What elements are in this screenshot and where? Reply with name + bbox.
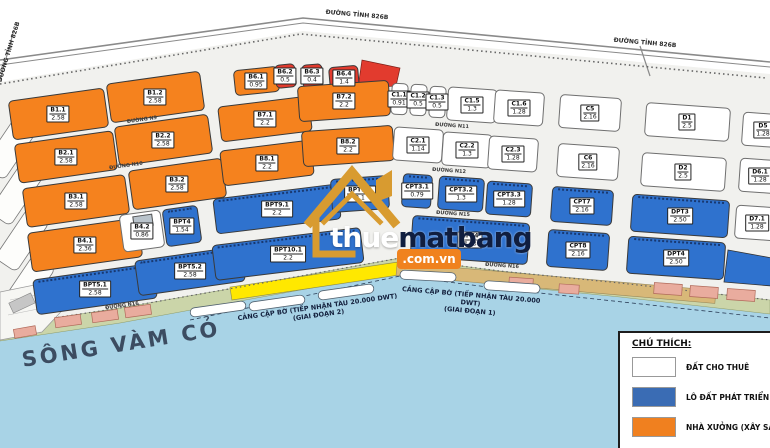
legend-item-factory: NHÀ XƯỞNG (XÂY SẴN) [632, 417, 770, 437]
legend-item-lease: ĐẤT CHO THUÊ [632, 357, 770, 377]
legend-swatch-develop [632, 387, 676, 407]
legend-item-develop: LÔ ĐẤT PHÁT TRIỂN [632, 387, 770, 407]
legend: CHÚ THÍCH: ĐẤT CHO THUÊ LÔ ĐẤT PHÁT TRIỂ… [618, 331, 770, 448]
master-plan-map: B1.12.58B1.22.58B2.12.58B2.22.58B3.12.58… [0, 0, 770, 448]
legend-swatch-lease [632, 357, 676, 377]
legend-swatch-factory [632, 417, 676, 437]
watermark-domain-badge: .com.vn [397, 249, 461, 269]
legend-title: CHÚ THÍCH: [632, 339, 770, 349]
